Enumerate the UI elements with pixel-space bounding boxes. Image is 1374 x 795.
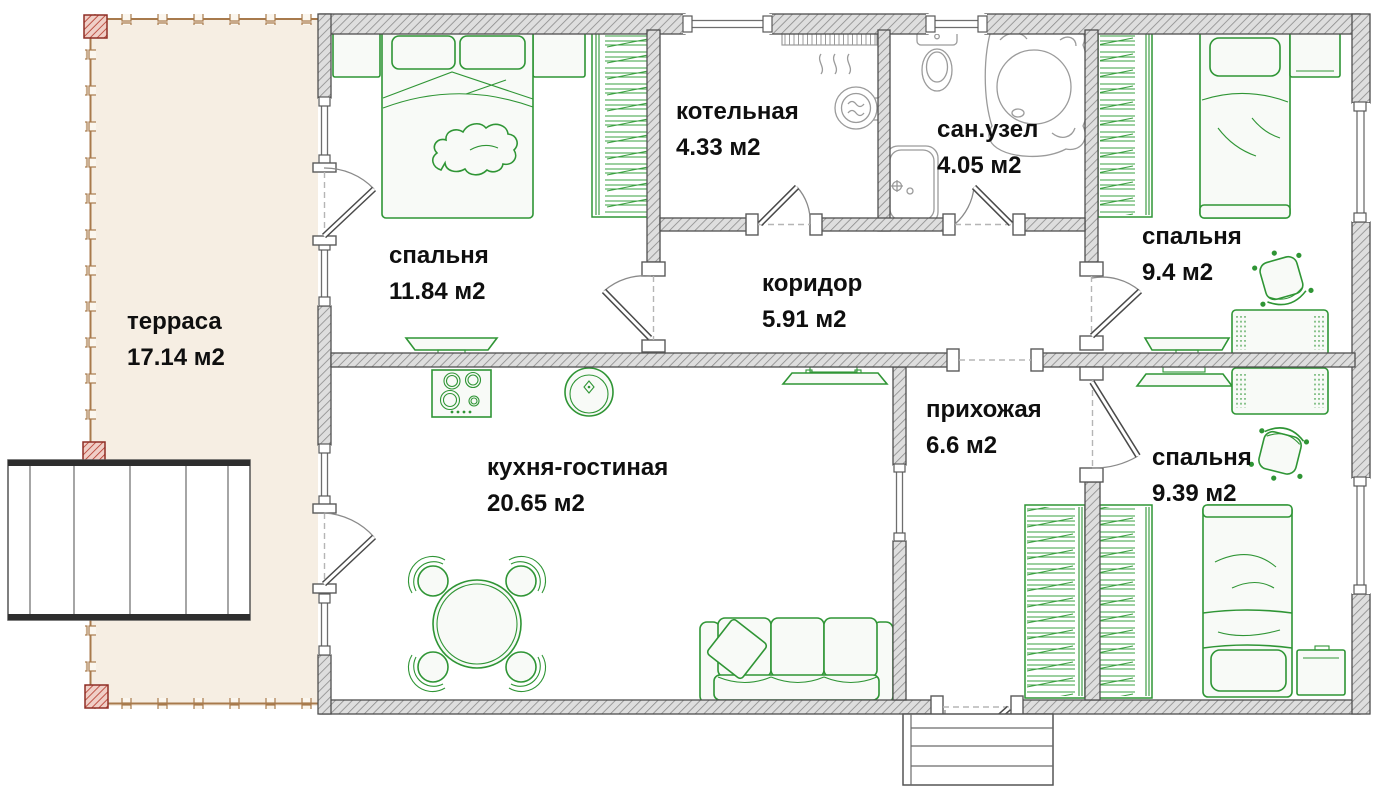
nightstand-icon xyxy=(533,30,585,77)
room-label-bedroom-2: спальня 9.4 м2 xyxy=(1142,219,1242,291)
wardrobe-icon xyxy=(1098,505,1152,698)
wall-segment xyxy=(331,353,955,367)
pillow xyxy=(460,36,525,69)
tv-icon xyxy=(1137,367,1232,386)
wall-segment xyxy=(814,218,947,231)
single-bed-icon xyxy=(1203,505,1292,697)
pillow xyxy=(1210,38,1280,76)
wall-segment xyxy=(647,30,660,262)
room-label-bedroom-3: спальня 9.39 м2 xyxy=(1152,440,1252,512)
room-area: 6.6 м2 xyxy=(926,428,1042,464)
room-label-boiler-room: котельная 4.33 м2 xyxy=(676,94,799,166)
room-hallway-furniture xyxy=(1025,505,1085,698)
sink-icon xyxy=(565,368,613,416)
room-bedroom-3-furniture xyxy=(1098,367,1345,698)
wall-segment xyxy=(985,14,1360,34)
desk-icon xyxy=(1232,368,1328,414)
wall-segment xyxy=(893,541,906,700)
wall-segment xyxy=(1015,700,1360,714)
boiler-icon xyxy=(835,87,880,129)
window-icon xyxy=(683,14,772,34)
cooktop-icon xyxy=(432,370,491,417)
wall-segment xyxy=(893,367,906,465)
room-name: кухня-гостиная xyxy=(487,450,668,486)
room-area: 9.39 м2 xyxy=(1152,476,1252,512)
room-label-hallway: прихожая 6.6 м2 xyxy=(926,392,1042,464)
stairs-entrance-icon xyxy=(903,714,1053,785)
table-top xyxy=(433,580,521,668)
stairs-west-icon xyxy=(8,460,250,620)
door-terrace-bedroom-1 xyxy=(324,168,374,236)
wall-segment xyxy=(1017,218,1085,231)
room-label-terrace: терраса 17.14 м2 xyxy=(127,304,225,376)
room-name: терраса xyxy=(127,304,225,340)
door-bedroom-2 xyxy=(1092,276,1141,336)
pillow xyxy=(392,36,455,69)
window-icon xyxy=(893,464,906,541)
dining-table-icon xyxy=(408,556,545,691)
wall-segment xyxy=(320,14,685,34)
corner-post-icon xyxy=(84,15,107,38)
room-name: спальня xyxy=(389,238,489,274)
desk-icon xyxy=(1232,310,1328,356)
wall-segment xyxy=(660,218,750,231)
corner-post-icon xyxy=(85,685,108,708)
wardrobe-icon xyxy=(1098,30,1152,217)
wall-segment xyxy=(1085,30,1098,262)
pillow xyxy=(1211,650,1286,691)
nightstand-icon xyxy=(1290,30,1340,77)
wall-segment xyxy=(1085,482,1100,700)
tv-icon xyxy=(783,367,887,384)
nightstand-icon xyxy=(1297,646,1345,695)
door-bathroom xyxy=(955,187,1013,225)
room-area: 20.65 м2 xyxy=(487,486,668,522)
room-bedroom-2-furniture xyxy=(1098,30,1340,356)
wall-segment xyxy=(1352,594,1370,714)
room-name: прихожая xyxy=(926,392,1042,428)
window-icon xyxy=(1352,477,1370,594)
room-name: котельная xyxy=(676,94,799,130)
chair-icon xyxy=(408,652,448,692)
room-area: 17.14 м2 xyxy=(127,340,225,376)
window-icon xyxy=(318,594,331,655)
door-boiler-room xyxy=(758,187,810,225)
wall-segment xyxy=(878,30,890,231)
wall-segment xyxy=(770,14,928,34)
room-name: коридор xyxy=(762,266,862,302)
window-icon xyxy=(926,14,987,34)
floor-plan: терраса 17.14 м2 спальня 11.84 м2 котель… xyxy=(0,0,1374,795)
room-area: 11.84 м2 xyxy=(389,274,489,310)
room-kitchen-furniture xyxy=(408,367,893,703)
room-label-bedroom-1: спальня 11.84 м2 xyxy=(389,238,489,310)
window-icon xyxy=(318,97,331,164)
room-area: 5.91 м2 xyxy=(762,302,862,338)
wardrobe-icon xyxy=(1025,505,1085,698)
window-icon xyxy=(318,444,331,505)
heat-waves-icon xyxy=(820,54,851,74)
wall-segment xyxy=(318,655,331,714)
window-icon xyxy=(318,241,331,306)
room-area: 4.33 м2 xyxy=(676,130,799,166)
room-label-bathroom: сан.узел 4.05 м2 xyxy=(937,112,1038,184)
chair-icon xyxy=(408,556,448,596)
wall-segment xyxy=(320,700,935,714)
room-area: 4.05 м2 xyxy=(937,148,1038,184)
room-label-kitchen-living: кухня-гостиная 20.65 м2 xyxy=(487,450,668,522)
wall-segment xyxy=(318,14,331,98)
chair-icon xyxy=(506,652,546,692)
wall-segment xyxy=(1035,353,1355,367)
toilet-icon xyxy=(917,28,957,91)
double-bed-icon xyxy=(382,30,533,218)
desk-chair-icon xyxy=(1247,243,1315,311)
room-bedroom-1-furniture xyxy=(333,30,650,355)
sofa-icon xyxy=(700,618,893,703)
wardrobe-icon xyxy=(592,30,650,217)
door-bedroom-1 xyxy=(604,276,654,340)
deck-railing-left-upper xyxy=(85,24,96,445)
chair-icon xyxy=(506,556,546,596)
window-icon xyxy=(1352,102,1370,222)
deck-railing-top xyxy=(88,14,318,25)
door-bedroom-3 xyxy=(1092,380,1138,468)
nightstand-icon xyxy=(333,30,380,77)
room-label-corridor: коридор 5.91 м2 xyxy=(762,266,862,338)
door-terrace-kitchen xyxy=(324,513,374,584)
bathtub-icon xyxy=(886,146,938,224)
deck-railing-bottom xyxy=(88,698,318,709)
room-name: сан.узел xyxy=(937,112,1038,148)
room-name: спальня xyxy=(1142,219,1242,255)
wall-segment xyxy=(1352,14,1370,103)
desk-chair-icon xyxy=(1246,422,1313,487)
room-area: 9.4 м2 xyxy=(1142,255,1242,291)
single-bed-icon xyxy=(1200,30,1290,218)
room-name: спальня xyxy=(1152,440,1252,476)
wall-segment xyxy=(1352,222,1370,478)
wall-segment xyxy=(318,306,331,445)
